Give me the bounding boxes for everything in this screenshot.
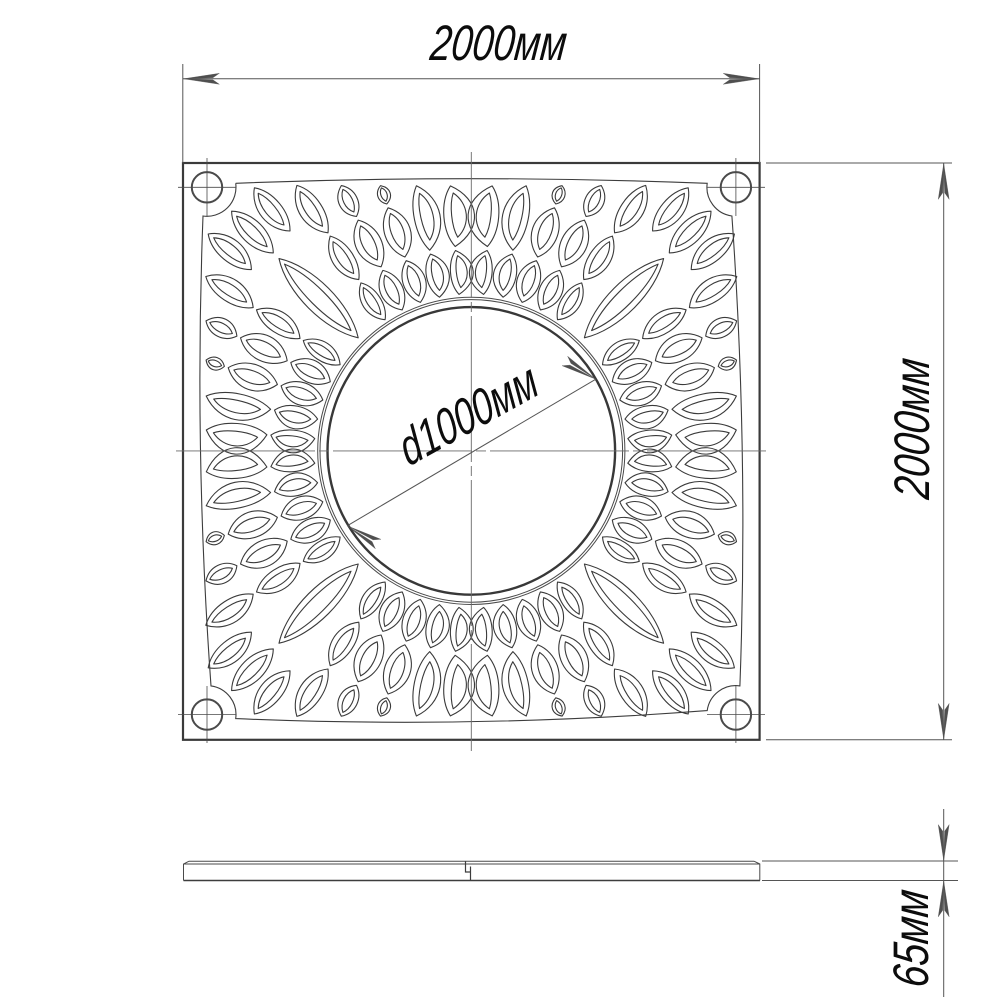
svg-text:2000мм: 2000мм [427, 15, 570, 71]
svg-text:65мм: 65мм [883, 887, 939, 990]
svg-text:2000мм: 2000мм [884, 355, 940, 502]
